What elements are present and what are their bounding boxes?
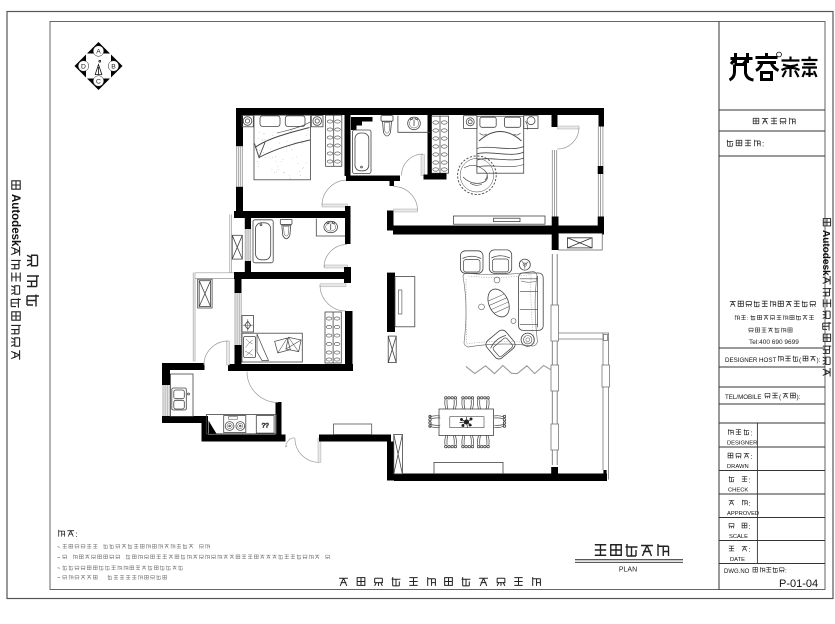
svg-text:):: ):: [817, 357, 821, 364]
svg-text::: :: [751, 431, 753, 438]
svg-text:??: ??: [262, 423, 270, 430]
svg-text:):: ):: [797, 394, 801, 401]
svg-text:SCALE: SCALE: [729, 534, 748, 540]
svg-text:TEL/MOBILE: TEL/MOBILE: [725, 394, 761, 401]
svg-text::: :: [749, 524, 751, 531]
svg-text::: :: [751, 454, 753, 461]
svg-text:APPROVED: APPROVED: [727, 511, 759, 517]
svg-text:Tel:400 690 9699: Tel:400 690 9699: [749, 339, 799, 346]
svg-text:DWG.NO: DWG.NO: [724, 569, 750, 575]
svg-text::: :: [785, 568, 787, 575]
svg-text:P-01-04: P-01-04: [779, 578, 818, 590]
svg-text:DESIGNER: DESIGNER: [727, 441, 757, 447]
svg-text:A: A: [96, 48, 101, 55]
svg-text::: :: [762, 140, 764, 149]
svg-text::: :: [749, 547, 751, 554]
svg-text:DESIGNER HOST: DESIGNER HOST: [725, 357, 776, 364]
svg-text:~: ~: [57, 556, 60, 562]
svg-text::: :: [749, 478, 751, 485]
svg-text:C: C: [96, 78, 101, 85]
svg-text:~: ~: [57, 545, 60, 551]
svg-text:Autodesk: Autodesk: [9, 194, 21, 247]
svg-text:DRAWN: DRAWN: [727, 464, 749, 470]
svg-text:~: ~: [57, 566, 60, 572]
svg-text:CHECK: CHECK: [728, 488, 748, 494]
svg-text:D: D: [81, 63, 86, 70]
svg-text:PLAN: PLAN: [619, 567, 637, 574]
svg-text:Autodesk: Autodesk: [820, 230, 831, 276]
svg-text:B: B: [111, 63, 116, 70]
svg-text::: :: [749, 501, 751, 508]
svg-text::: :: [76, 530, 78, 539]
svg-text:DATE: DATE: [730, 557, 745, 563]
svg-text:~: ~: [57, 576, 60, 582]
